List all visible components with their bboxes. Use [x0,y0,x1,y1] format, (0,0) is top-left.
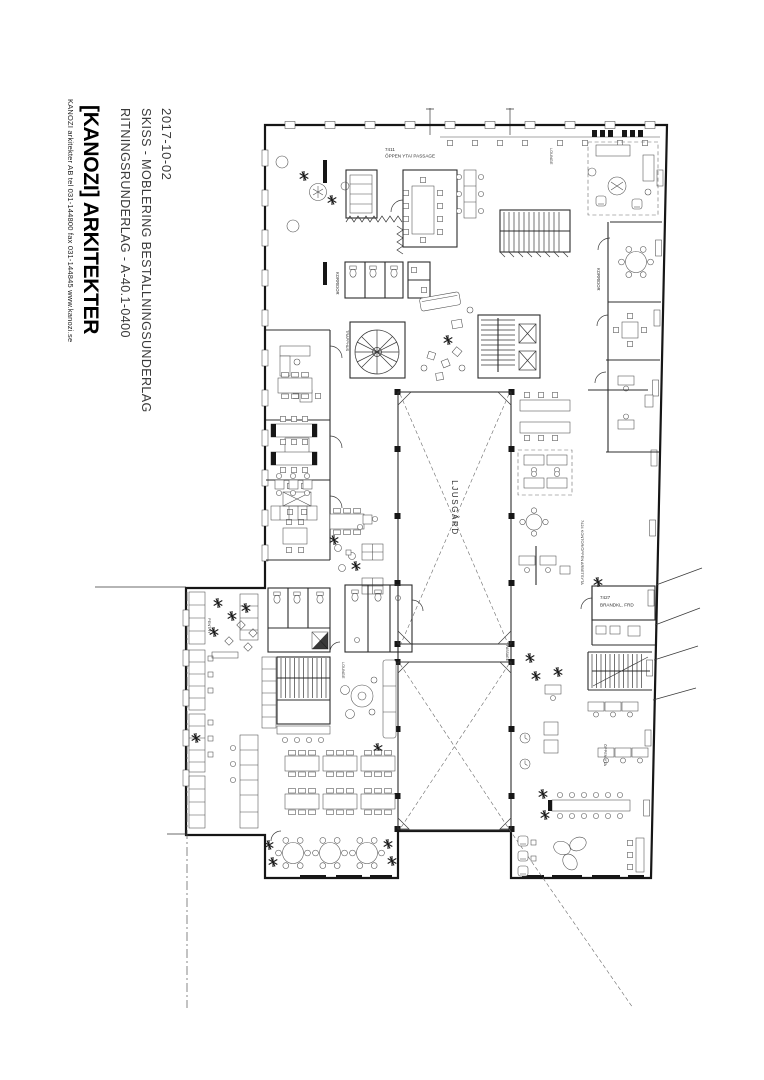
courtyard-corner-braces [398,392,511,829]
cafe-grid-tables [275,473,312,495]
straight-stair-top [500,212,570,252]
core-stair [481,318,515,372]
label-lounge-top: LOUNGE [549,148,554,165]
center-sofa-group [419,292,473,329]
label-passage: PASSAGE [505,645,509,662]
wc-cluster-mid [345,585,412,652]
label-lounge-left: LOUNGE [341,662,346,679]
kitchen-servery [189,592,258,828]
elevators [519,324,536,370]
label-corridor-right: KORRIDOR [596,268,601,291]
label-corridor-left: KORRIDOR [335,272,340,295]
table-8 [330,509,364,535]
courtyard-diagonals [400,394,633,1008]
leader-lines [653,568,702,700]
right-meeting-rooms [613,247,653,430]
label-fire-storage-number: 7427 [600,595,611,600]
label-open-area-number: 7411 [385,147,395,152]
label-open-space: ÖPPEN YTA [603,744,608,766]
stair-right-wing [592,654,650,688]
lounge-left-wing [341,660,397,753]
label-stairwell: TRAPPHUS [345,330,350,352]
wc-cluster-left [268,588,330,652]
window-bar-stools [440,137,660,146]
label-open-area: ÖPPEN YTA/ PASSAGE [385,153,435,159]
facade-windows [183,122,663,880]
storage-shelving [350,175,372,213]
wc-cluster-top [350,266,427,293]
label-office-open: 7424 KONTOR/ÖPPEN ARBETSYTA [580,520,585,585]
label-courtyard: LJUSGÅRD [450,480,459,535]
stair-block-left [262,657,330,743]
floor-plan: 7411 ÖPPEN YTA/ PASSAGE LJUSGÅRD 7427 BR… [0,0,764,1080]
center-counter [456,170,483,218]
right-wing-desk-rows [520,653,648,769]
right-wing-walls [536,390,655,690]
label-pantry: PENTRY [207,618,212,634]
interior-walls-top [266,170,662,560]
label-fire-storage: BRANDKL. FRD [600,603,634,608]
section-markers [426,108,514,135]
spiral-stair [355,330,399,374]
entry-lounge-plants [276,156,349,285]
courtyard [395,389,634,1008]
conference-room-furniture [403,177,442,242]
drawing-sheet: 2017-10-02 SKISS - MOBLERING BESTALLNING… [0,0,764,1080]
right-wing-bench-desks [518,392,572,574]
entry-zone [210,598,258,658]
table-6-left-wing [278,373,312,399]
pouf-scatter [421,335,465,380]
high-table [539,789,630,820]
restaurant-tables [285,751,395,815]
terrace [265,838,397,869]
